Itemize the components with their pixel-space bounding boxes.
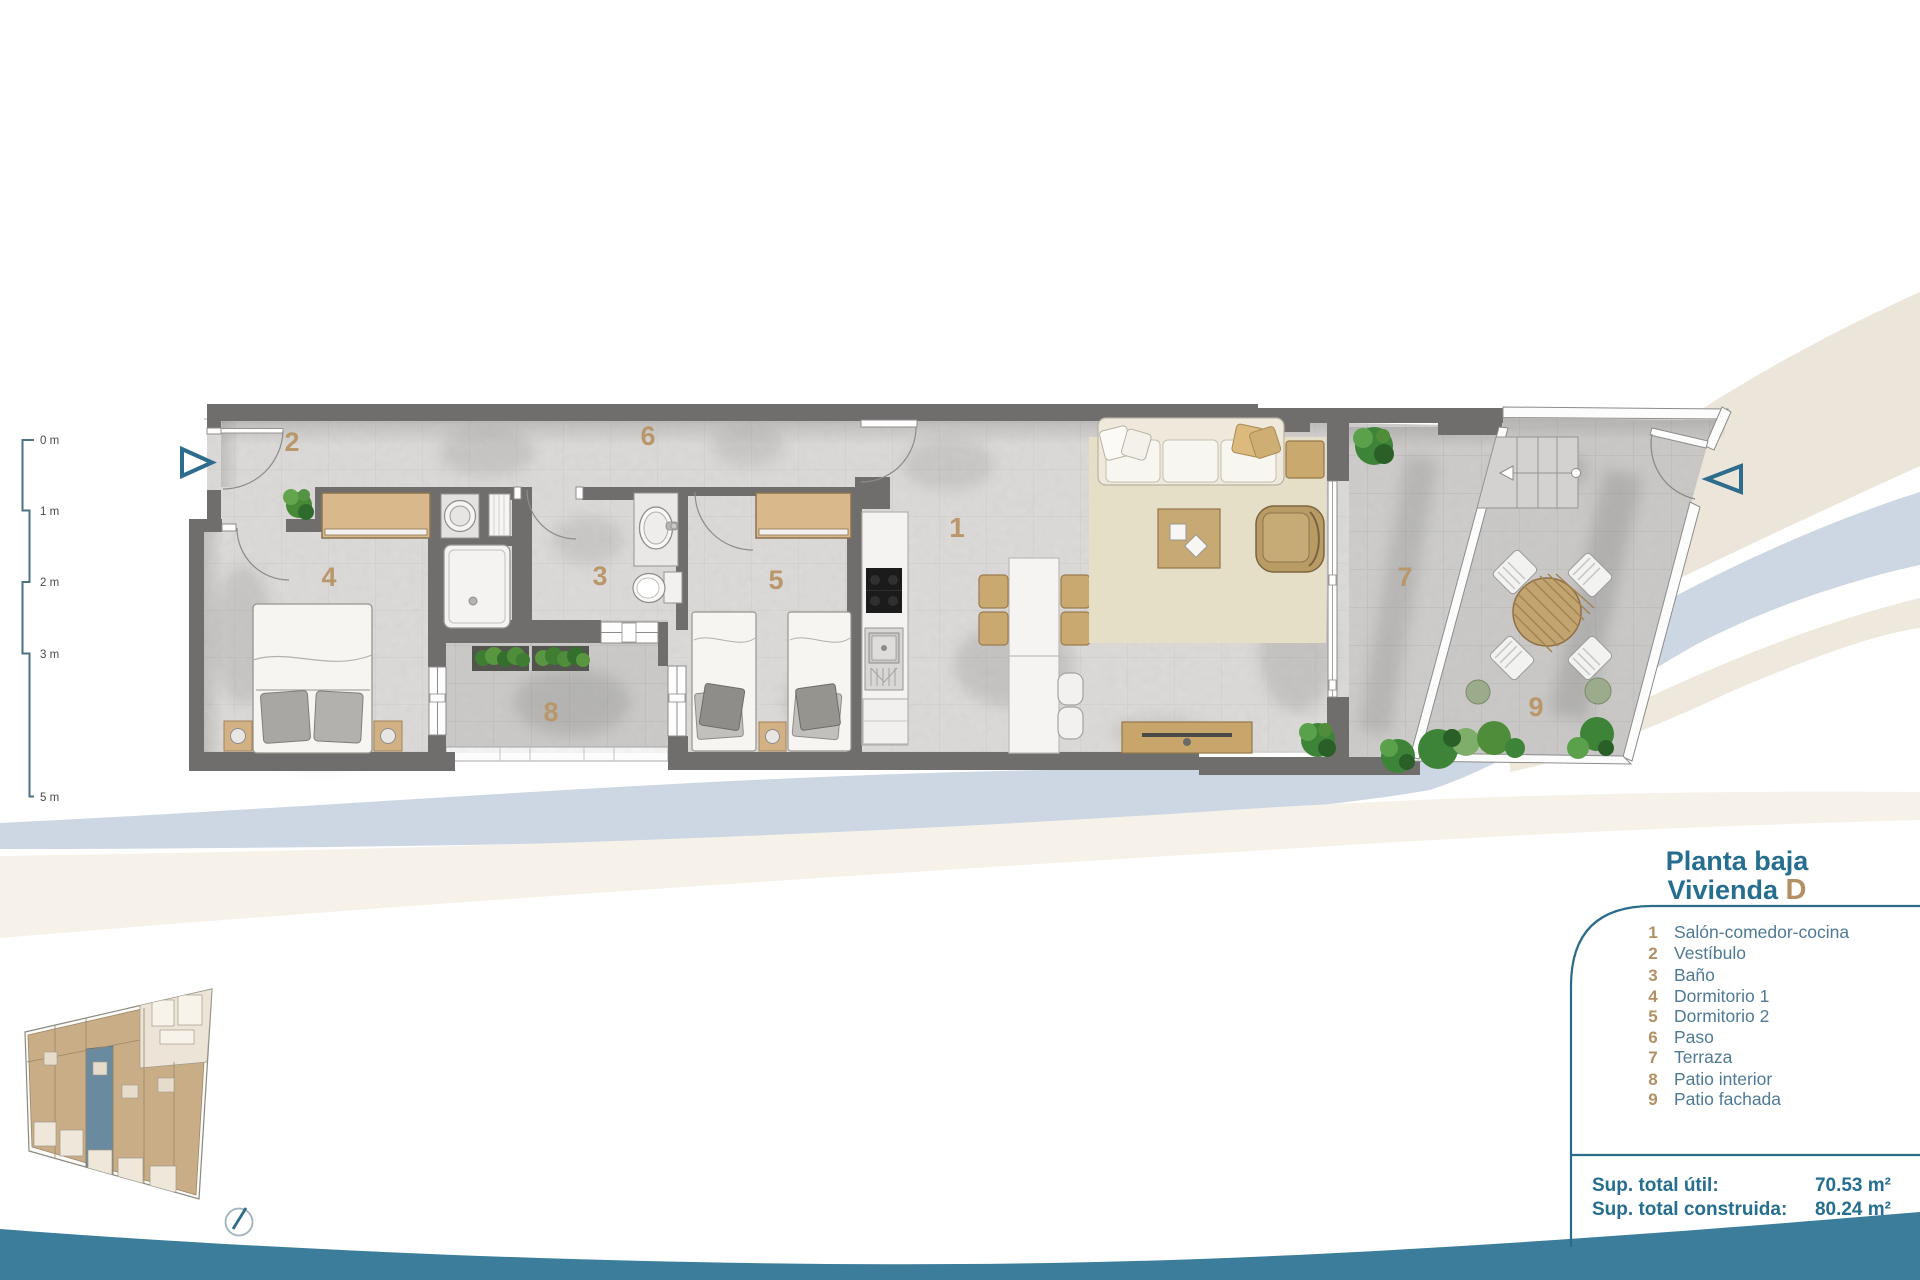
svg-text:Baño: Baño xyxy=(1674,965,1715,985)
svg-text:Sup. total construida:: Sup. total construida: xyxy=(1592,1199,1787,1220)
svg-text:6: 6 xyxy=(640,421,655,451)
svg-text:2: 2 xyxy=(1648,944,1657,963)
svg-text:1: 1 xyxy=(1648,923,1657,942)
svg-text:Planta baja: Planta baja xyxy=(1666,846,1810,876)
svg-text:Terraza: Terraza xyxy=(1674,1047,1733,1067)
svg-text:4: 4 xyxy=(1648,987,1658,1006)
svg-text:0 m: 0 m xyxy=(40,435,59,447)
svg-text:Salón-comedor-cocina: Salón-comedor-cocina xyxy=(1674,922,1849,942)
svg-text:8: 8 xyxy=(543,697,558,727)
svg-text:9: 9 xyxy=(1528,692,1543,722)
svg-text:9: 9 xyxy=(1648,1090,1657,1109)
svg-text:3: 3 xyxy=(592,561,607,591)
svg-text:Patio interior: Patio interior xyxy=(1674,1069,1772,1089)
svg-text:8: 8 xyxy=(1648,1070,1657,1089)
svg-text:7: 7 xyxy=(1397,562,1412,592)
svg-text:Vestíbulo: Vestíbulo xyxy=(1674,943,1746,963)
svg-text:5 m: 5 m xyxy=(40,792,59,804)
svg-text:5: 5 xyxy=(768,565,783,595)
svg-text:7: 7 xyxy=(1648,1048,1657,1067)
svg-text:70.53 m²: 70.53 m² xyxy=(1815,1175,1891,1196)
svg-text:2: 2 xyxy=(284,427,299,457)
svg-text:80.24 m²: 80.24 m² xyxy=(1815,1199,1891,1220)
svg-text:1 m: 1 m xyxy=(40,506,59,518)
svg-text:4: 4 xyxy=(321,562,336,592)
svg-text:Vivienda D: Vivienda D xyxy=(1667,874,1806,906)
svg-text:6: 6 xyxy=(1648,1028,1657,1047)
svg-text:2 m: 2 m xyxy=(40,577,59,589)
svg-text:Sup. total útil:: Sup. total útil: xyxy=(1592,1175,1719,1196)
svg-text:Dormitorio 2: Dormitorio 2 xyxy=(1674,1006,1769,1026)
svg-text:5: 5 xyxy=(1648,1007,1657,1026)
svg-text:Dormitorio 1: Dormitorio 1 xyxy=(1674,986,1769,1006)
svg-text:3: 3 xyxy=(1648,966,1657,985)
svg-text:Patio fachada: Patio fachada xyxy=(1674,1089,1781,1109)
svg-text:Paso: Paso xyxy=(1674,1027,1714,1047)
svg-text:3 m: 3 m xyxy=(40,649,59,661)
svg-text:1: 1 xyxy=(949,512,965,543)
